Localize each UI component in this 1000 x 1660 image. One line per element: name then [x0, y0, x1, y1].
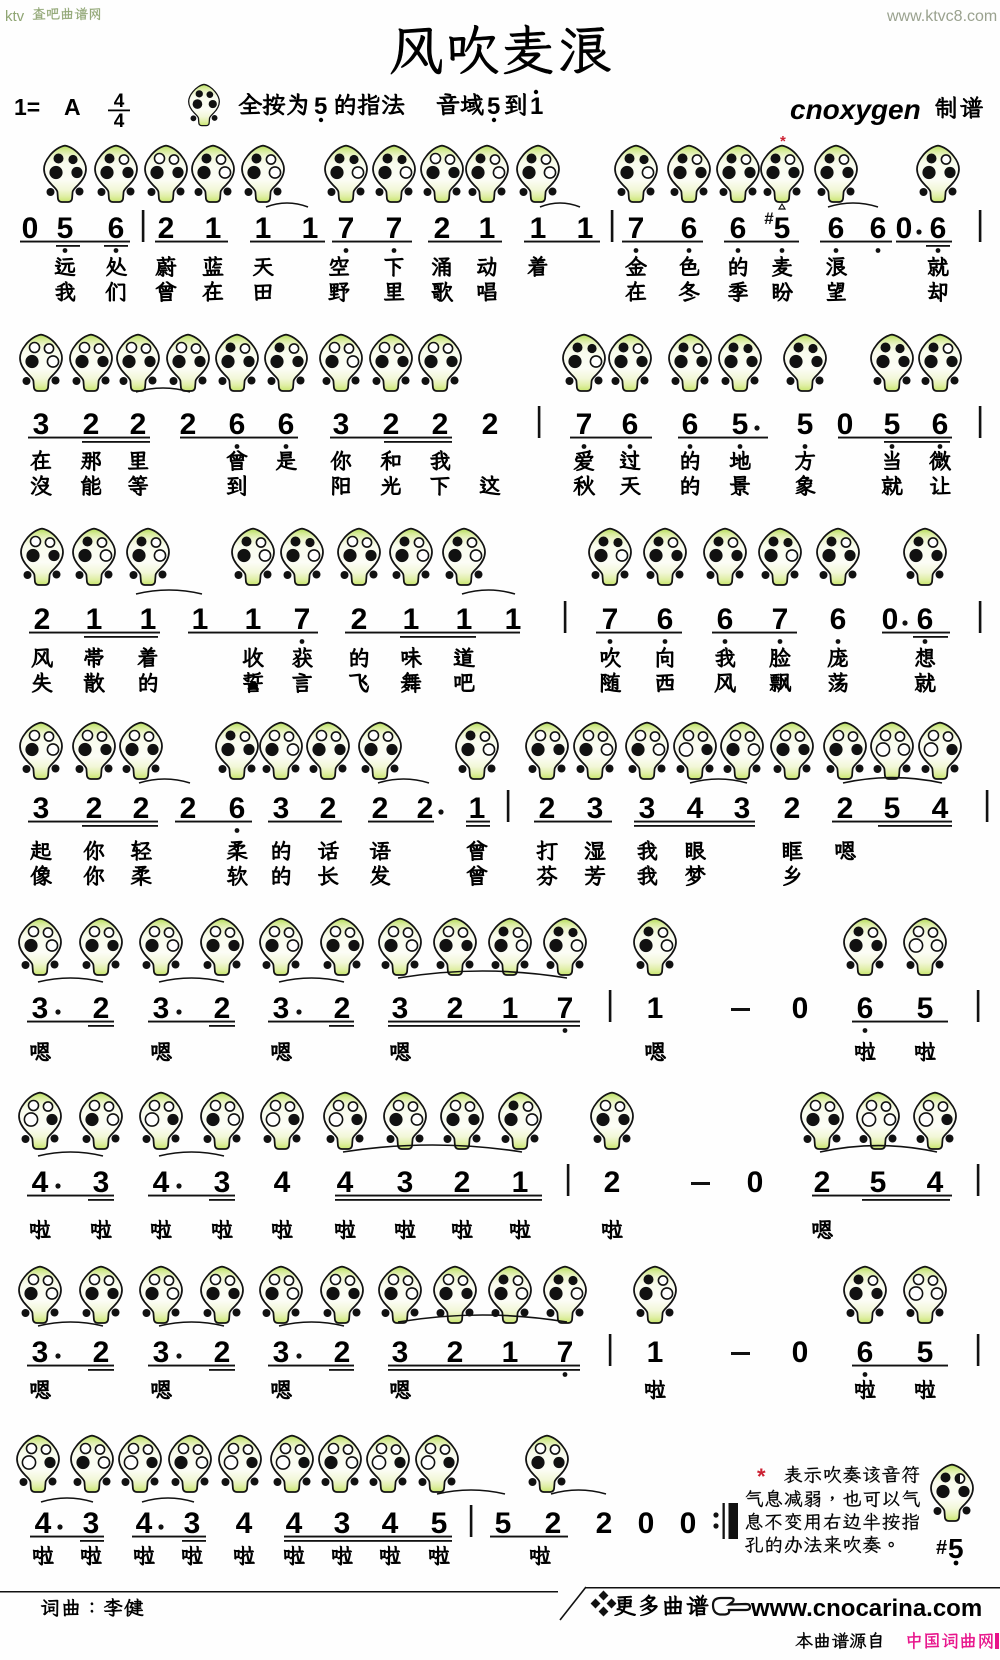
svg-text:7: 7	[557, 1336, 574, 1369]
svg-text:3: 3	[639, 792, 656, 825]
svg-text:2: 2	[214, 992, 231, 1025]
svg-text:7: 7	[386, 212, 403, 245]
svg-text:5: 5	[917, 992, 934, 1025]
svg-text:0: 0	[837, 408, 854, 441]
svg-text:0: 0	[680, 1507, 697, 1540]
svg-text:6: 6	[932, 408, 949, 441]
svg-text:5: 5	[797, 408, 814, 441]
svg-text:A: A	[64, 94, 81, 120]
svg-text:5: 5	[431, 1507, 448, 1540]
svg-text:6: 6	[681, 212, 698, 245]
svg-text:3: 3	[153, 992, 170, 1025]
svg-text:2: 2	[214, 1336, 231, 1369]
svg-text:4: 4	[236, 1507, 253, 1540]
svg-text:1: 1	[577, 212, 594, 245]
svg-text:2: 2	[34, 603, 51, 636]
svg-text:3: 3	[273, 992, 290, 1025]
svg-text:4: 4	[932, 792, 949, 825]
svg-text:1: 1	[140, 603, 157, 636]
svg-text:0: 0	[638, 1507, 655, 1540]
svg-text:3: 3	[33, 792, 50, 825]
svg-text:2: 2	[93, 1336, 110, 1369]
svg-text:5: 5	[487, 93, 500, 120]
svg-text:2: 2	[180, 408, 197, 441]
svg-text:3: 3	[397, 1166, 414, 1199]
svg-text:0: 0	[747, 1166, 764, 1199]
svg-text:1: 1	[530, 212, 547, 245]
svg-text:2: 2	[86, 792, 103, 825]
svg-text:6: 6	[930, 212, 947, 245]
svg-text:5: 5	[884, 792, 901, 825]
svg-text:6: 6	[828, 212, 845, 245]
svg-text:5: 5	[948, 1533, 964, 1564]
svg-text:1: 1	[512, 1166, 529, 1199]
svg-text:7: 7	[772, 603, 789, 636]
svg-text:5: 5	[732, 408, 749, 441]
svg-text:5: 5	[774, 212, 791, 245]
svg-text:3: 3	[273, 1336, 290, 1369]
svg-text:1: 1	[647, 1336, 664, 1369]
svg-text:#: #	[764, 209, 774, 228]
svg-text:5: 5	[870, 1166, 887, 1199]
svg-text:6: 6	[830, 603, 847, 636]
svg-text:6: 6	[870, 212, 887, 245]
svg-text:3: 3	[334, 1507, 351, 1540]
svg-text:2: 2	[447, 1336, 464, 1369]
svg-text:#: #	[936, 1537, 947, 1559]
svg-text:5: 5	[57, 212, 74, 245]
svg-text:6: 6	[857, 992, 874, 1025]
svg-text:6: 6	[229, 792, 246, 825]
svg-text:2: 2	[434, 212, 451, 245]
svg-text:2: 2	[545, 1507, 562, 1540]
svg-text:1: 1	[403, 603, 420, 636]
svg-text:5: 5	[884, 408, 901, 441]
svg-text:4: 4	[136, 1507, 153, 1540]
svg-text:2: 2	[784, 792, 801, 825]
svg-text:1: 1	[245, 603, 262, 636]
svg-text:1: 1	[192, 603, 209, 636]
svg-text:2: 2	[133, 792, 150, 825]
svg-text:0: 0	[896, 212, 913, 245]
svg-text:1: 1	[255, 212, 272, 245]
svg-text:6: 6	[622, 408, 639, 441]
svg-text:3: 3	[33, 408, 50, 441]
svg-text:1: 1	[456, 603, 473, 636]
svg-text:2: 2	[334, 1336, 351, 1369]
svg-text:1: 1	[647, 992, 664, 1025]
svg-text:4: 4	[286, 1507, 303, 1540]
svg-text:1: 1	[479, 212, 496, 245]
svg-text:3: 3	[392, 992, 409, 1025]
svg-text:2: 2	[596, 1507, 613, 1540]
svg-text:6: 6	[917, 603, 934, 636]
svg-text:4: 4	[382, 1507, 399, 1540]
svg-text:3: 3	[83, 1507, 100, 1540]
svg-text:2: 2	[372, 792, 389, 825]
svg-text:2: 2	[130, 408, 147, 441]
svg-text:6: 6	[857, 1336, 874, 1369]
svg-text:4: 4	[114, 111, 125, 132]
svg-text:7: 7	[628, 212, 645, 245]
svg-text:0: 0	[22, 212, 39, 245]
svg-text:1: 1	[502, 1336, 519, 1369]
svg-text:1: 1	[469, 792, 486, 825]
svg-text:4: 4	[35, 1507, 52, 1540]
svg-text:ktv: ktv	[5, 8, 25, 25]
svg-text:3: 3	[153, 1336, 170, 1369]
svg-text:5: 5	[917, 1336, 934, 1369]
svg-text:6: 6	[108, 212, 125, 245]
svg-text:0: 0	[882, 603, 899, 636]
svg-text:5: 5	[314, 93, 327, 120]
svg-text:7: 7	[602, 603, 619, 636]
svg-text:2: 2	[83, 408, 100, 441]
svg-text:7: 7	[338, 212, 355, 245]
svg-text:4: 4	[687, 792, 704, 825]
svg-text:2: 2	[814, 1166, 831, 1199]
svg-text:2: 2	[158, 212, 175, 245]
svg-text:*: *	[757, 1464, 766, 1489]
svg-text:4: 4	[927, 1166, 944, 1199]
svg-text:1: 1	[502, 992, 519, 1025]
svg-text:2: 2	[454, 1166, 471, 1199]
svg-text:1: 1	[302, 212, 319, 245]
svg-text:6: 6	[278, 408, 295, 441]
svg-text:4: 4	[153, 1166, 170, 1199]
svg-text:4: 4	[274, 1166, 291, 1199]
svg-text:4: 4	[337, 1166, 354, 1199]
svg-text:2: 2	[383, 408, 400, 441]
svg-text:2: 2	[320, 792, 337, 825]
svg-text:6: 6	[730, 212, 747, 245]
svg-text:7: 7	[557, 992, 574, 1025]
svg-text:4: 4	[32, 1166, 49, 1199]
svg-text:3: 3	[184, 1507, 201, 1540]
svg-text:2: 2	[482, 408, 499, 441]
svg-text:www.ktvc8.com: www.ktvc8.com	[886, 8, 997, 25]
svg-text:3: 3	[273, 792, 290, 825]
svg-text:3: 3	[32, 992, 49, 1025]
svg-text:3: 3	[214, 1166, 231, 1199]
svg-text:2: 2	[180, 792, 197, 825]
svg-text:3: 3	[392, 1336, 409, 1369]
svg-text:6: 6	[229, 408, 246, 441]
svg-text:2: 2	[334, 992, 351, 1025]
svg-text:4: 4	[114, 91, 125, 112]
svg-text:2: 2	[604, 1166, 621, 1199]
svg-text:3: 3	[734, 792, 751, 825]
svg-text:2: 2	[93, 992, 110, 1025]
svg-text:3: 3	[333, 408, 350, 441]
svg-text:1: 1	[505, 603, 522, 636]
svg-text:0: 0	[792, 1336, 809, 1369]
svg-text:1: 1	[530, 93, 543, 120]
svg-text:7: 7	[576, 408, 593, 441]
svg-text:2: 2	[539, 792, 556, 825]
svg-text:6: 6	[717, 603, 734, 636]
svg-text:3: 3	[32, 1336, 49, 1369]
svg-text:6: 6	[682, 408, 699, 441]
svg-text:0: 0	[792, 992, 809, 1025]
svg-text:3: 3	[587, 792, 604, 825]
svg-text:5: 5	[495, 1507, 512, 1540]
svg-text:2: 2	[432, 408, 449, 441]
svg-text:1: 1	[86, 603, 103, 636]
svg-text:1=: 1=	[14, 94, 40, 120]
svg-text:6: 6	[657, 603, 674, 636]
svg-text:www.cnocarina.com: www.cnocarina.com	[750, 1595, 982, 1622]
svg-text:1: 1	[205, 212, 222, 245]
svg-text:2: 2	[837, 792, 854, 825]
svg-text:2: 2	[351, 603, 368, 636]
svg-text:2: 2	[447, 992, 464, 1025]
svg-text:2: 2	[417, 792, 434, 825]
svg-text:cnoxygen: cnoxygen	[790, 94, 921, 125]
svg-text:7: 7	[294, 603, 311, 636]
svg-text:3: 3	[93, 1166, 110, 1199]
